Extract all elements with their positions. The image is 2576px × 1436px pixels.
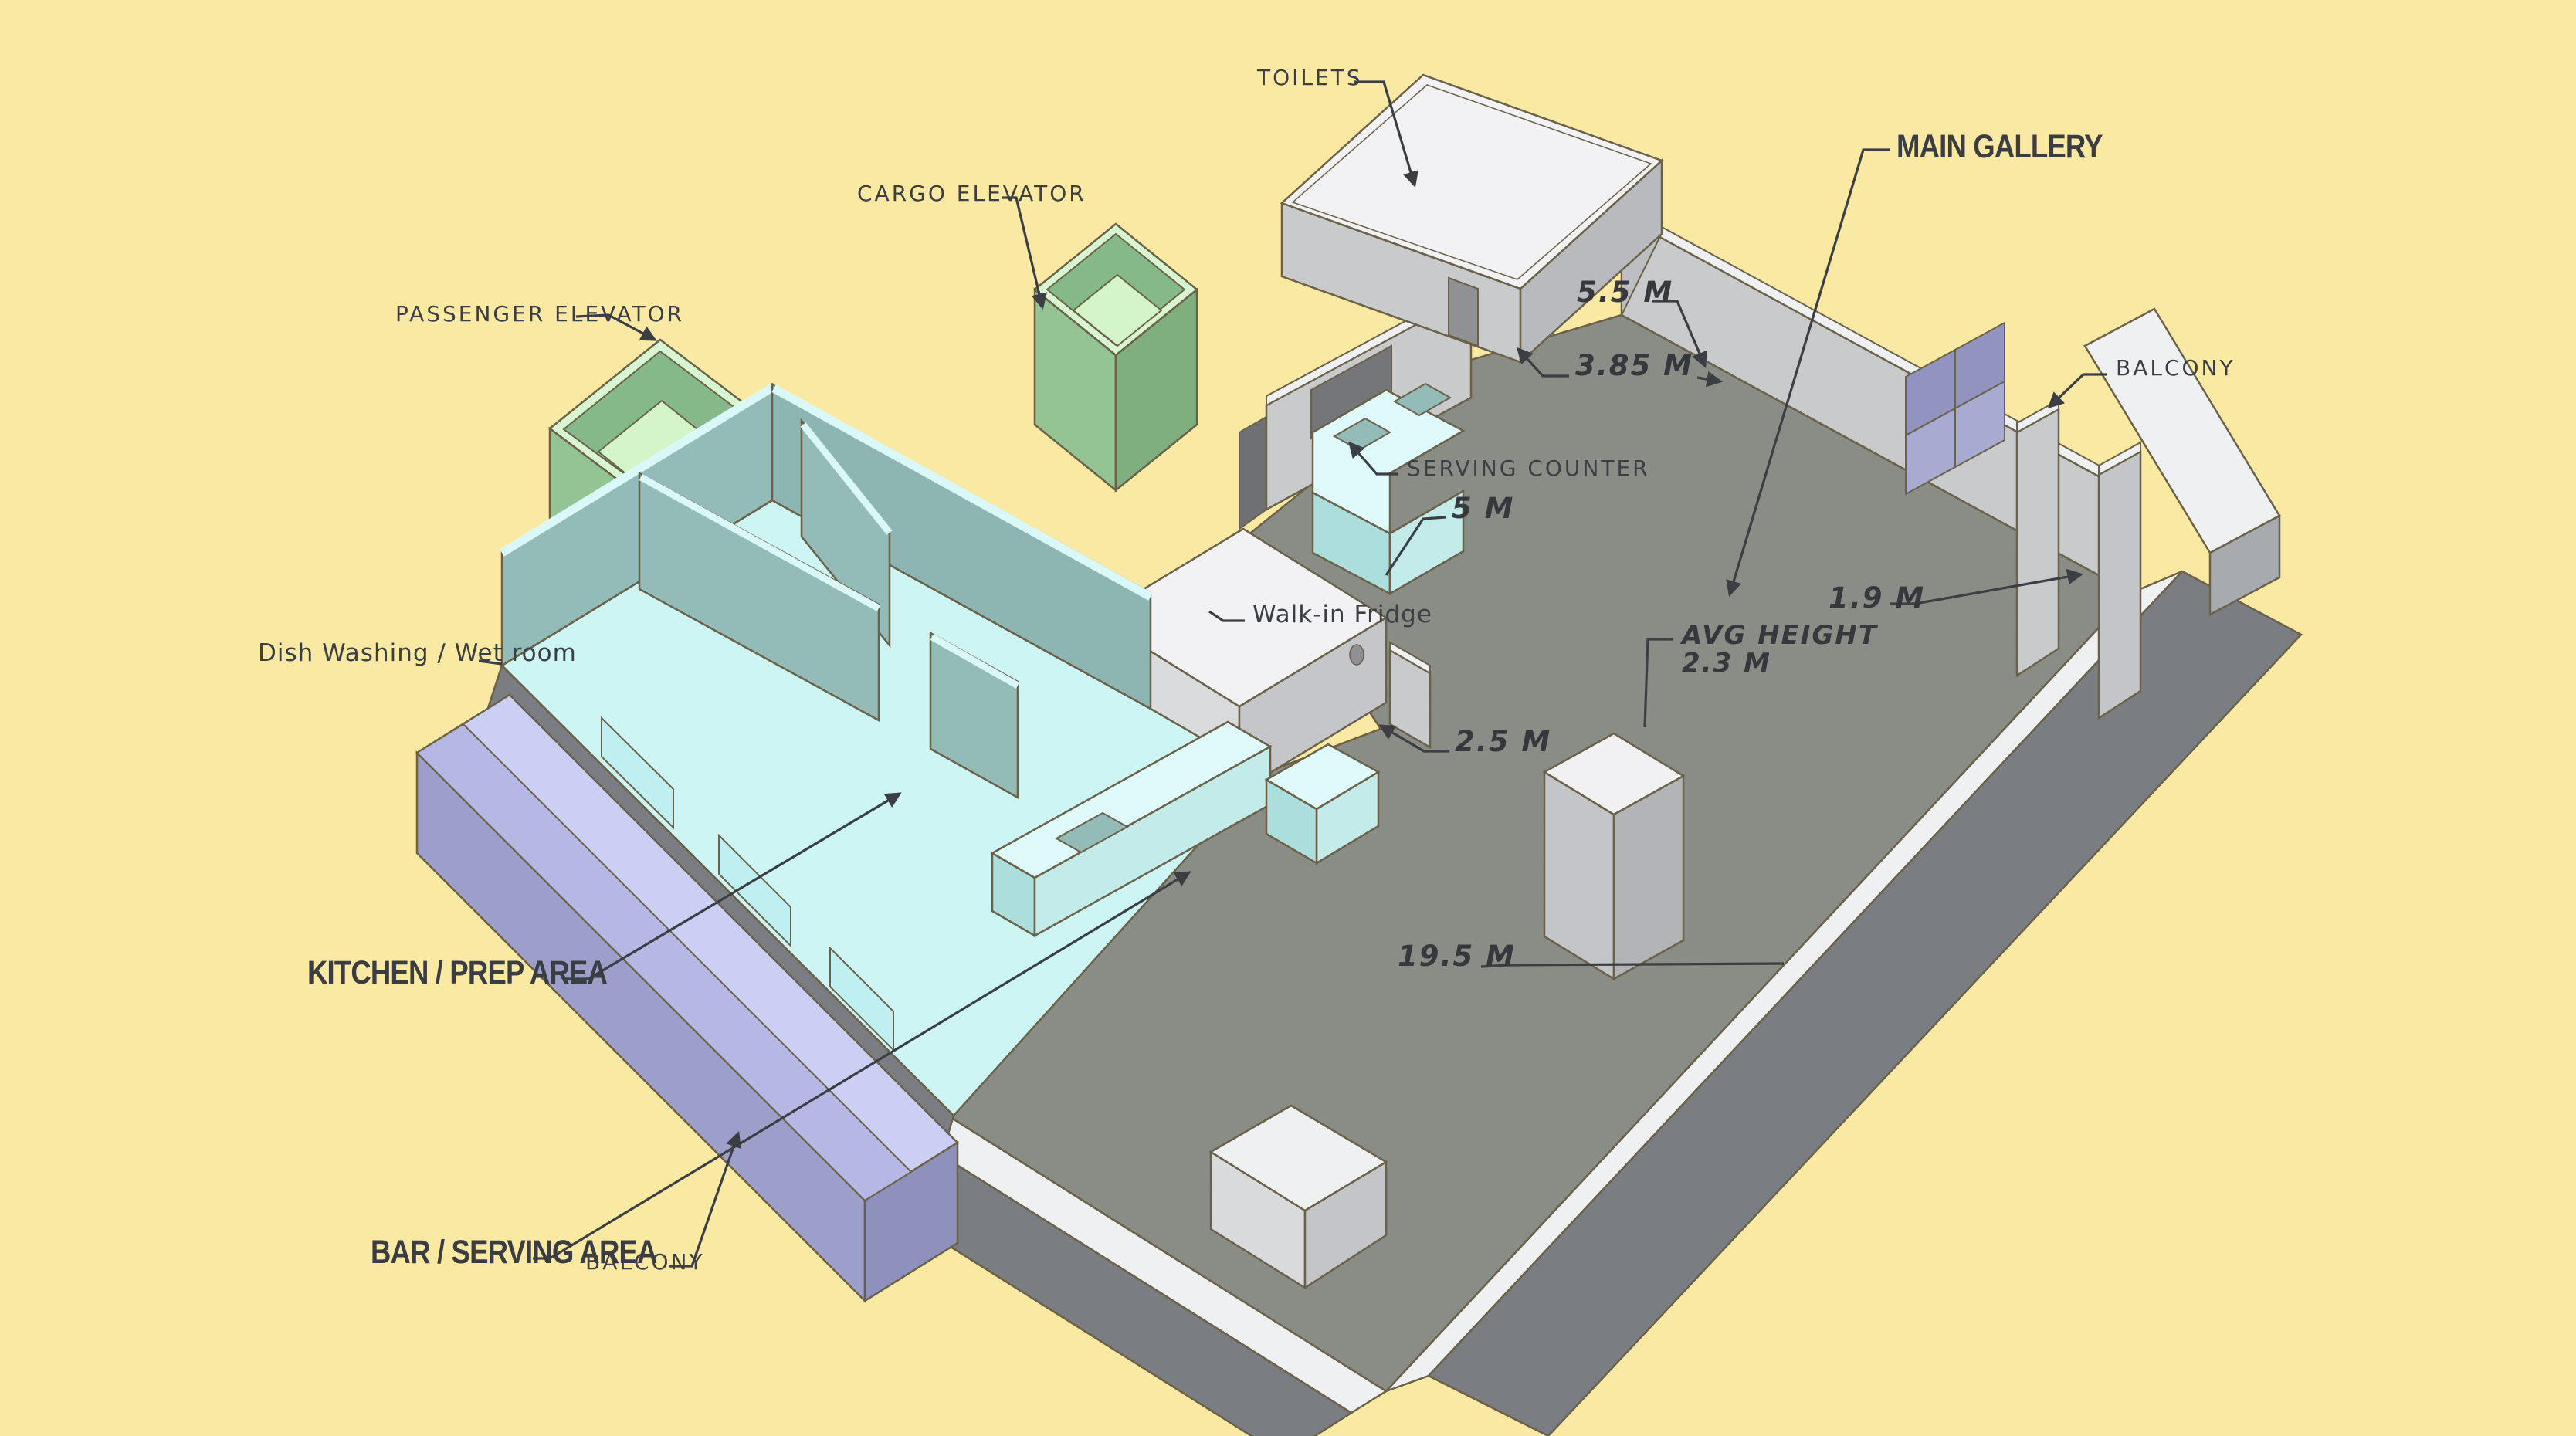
label-serving-counter: SERVING COUNTER <box>1407 457 1650 479</box>
measure-1-9m: 1.9 M <box>1829 584 1925 614</box>
measure-2-5m: 2.5 M <box>1455 727 1551 757</box>
measure-avg-height-value: 2.3 M <box>1682 650 1878 678</box>
measure-19-5m: 19.5 M <box>1398 942 1516 972</box>
measure-5-5m: 5.5 M <box>1577 278 1673 308</box>
measure-avg-height: AVG HEIGHT 2.3 M <box>1682 622 1878 677</box>
floor-plan-scene: TOILETS CARGO ELEVATOR PASSENGER ELEVATO… <box>0 0 2576 1436</box>
label-balcony-bottom: BALCONY <box>585 1251 705 1273</box>
cargo-elevator-structure <box>1035 224 1197 490</box>
gallery-pillar <box>1544 733 1683 979</box>
measure-5m: 5 M <box>1452 494 1514 524</box>
label-main-gallery: MAIN GALLERY <box>1896 130 2103 164</box>
floor-plan-canvas <box>0 0 2576 1436</box>
label-walk-in-fridge: Walk-in Fridge <box>1252 602 1432 628</box>
label-cargo-elevator: CARGO ELEVATOR <box>857 182 1086 205</box>
label-kitchen: KITCHEN / PREP AREA <box>307 956 607 991</box>
label-toilets: TOILETS <box>1257 66 1363 89</box>
label-balcony-right: BALCONY <box>2116 357 2235 379</box>
measure-3-85m: 3.85 M <box>1575 351 1693 381</box>
label-passenger-elevator: PASSENGER ELEVATOR <box>395 303 684 325</box>
measure-avg-height-label: AVG HEIGHT <box>1682 622 1878 650</box>
label-dish-washing: Dish Washing / Wet room <box>258 641 577 666</box>
